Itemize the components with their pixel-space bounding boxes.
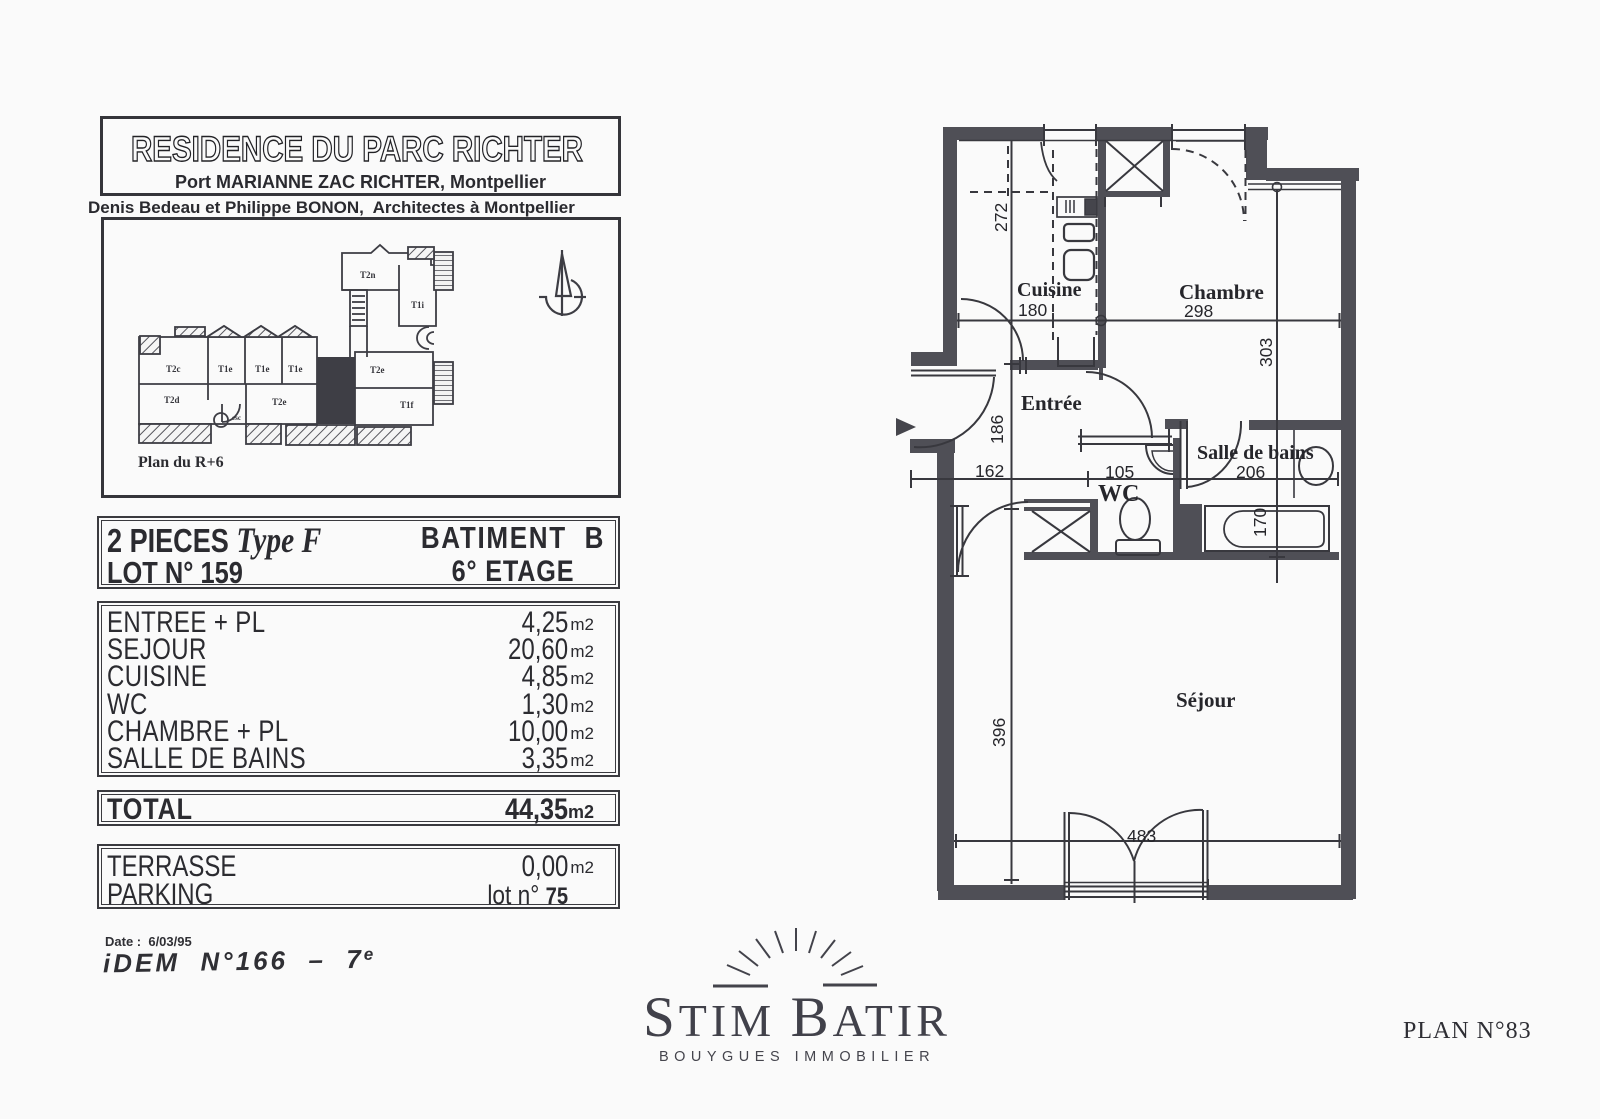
svg-text:Salle de bains: Salle de bains [1197,442,1314,464]
svg-text:162: 162 [975,461,1004,481]
svg-text:298: 298 [1184,301,1213,321]
svg-text:WC: WC [1098,481,1139,507]
svg-text:170: 170 [1250,508,1270,537]
svg-text:esc: esc [232,414,241,422]
svg-text:272: 272 [991,203,1011,232]
svg-text:T2d: T2d [164,395,180,405]
svg-text:T1f: T1f [400,400,415,410]
svg-text:396: 396 [989,718,1009,747]
svg-text:T1i: T1i [411,300,425,310]
svg-text:Cuisine: Cuisine [1017,279,1082,301]
svg-text:105: 105 [1105,462,1134,482]
svg-text:T1e: T1e [255,364,270,374]
svg-text:206: 206 [1236,462,1265,482]
svg-text:BOUYGUES IMMOBILIER: BOUYGUES IMMOBILIER [659,1049,935,1065]
svg-text:Entrée: Entrée [1021,391,1082,415]
svg-text:T2n: T2n [360,270,376,280]
svg-text:186: 186 [987,415,1007,444]
svg-text:483: 483 [1127,826,1156,846]
svg-text:T2e: T2e [272,397,287,407]
svg-text:T1e: T1e [218,364,233,374]
svg-text:303: 303 [1256,338,1276,367]
svg-text:T2c: T2c [166,364,181,374]
svg-text:Séjour: Séjour [1176,688,1236,712]
svg-text:T1e: T1e [288,364,303,374]
svg-text:T2e: T2e [370,365,385,375]
svg-text:STIM BATIR: STIM BATIR [643,986,951,1049]
svg-text:Plan du R+6: Plan du R+6 [138,454,224,471]
svg-text:180: 180 [1018,300,1047,320]
